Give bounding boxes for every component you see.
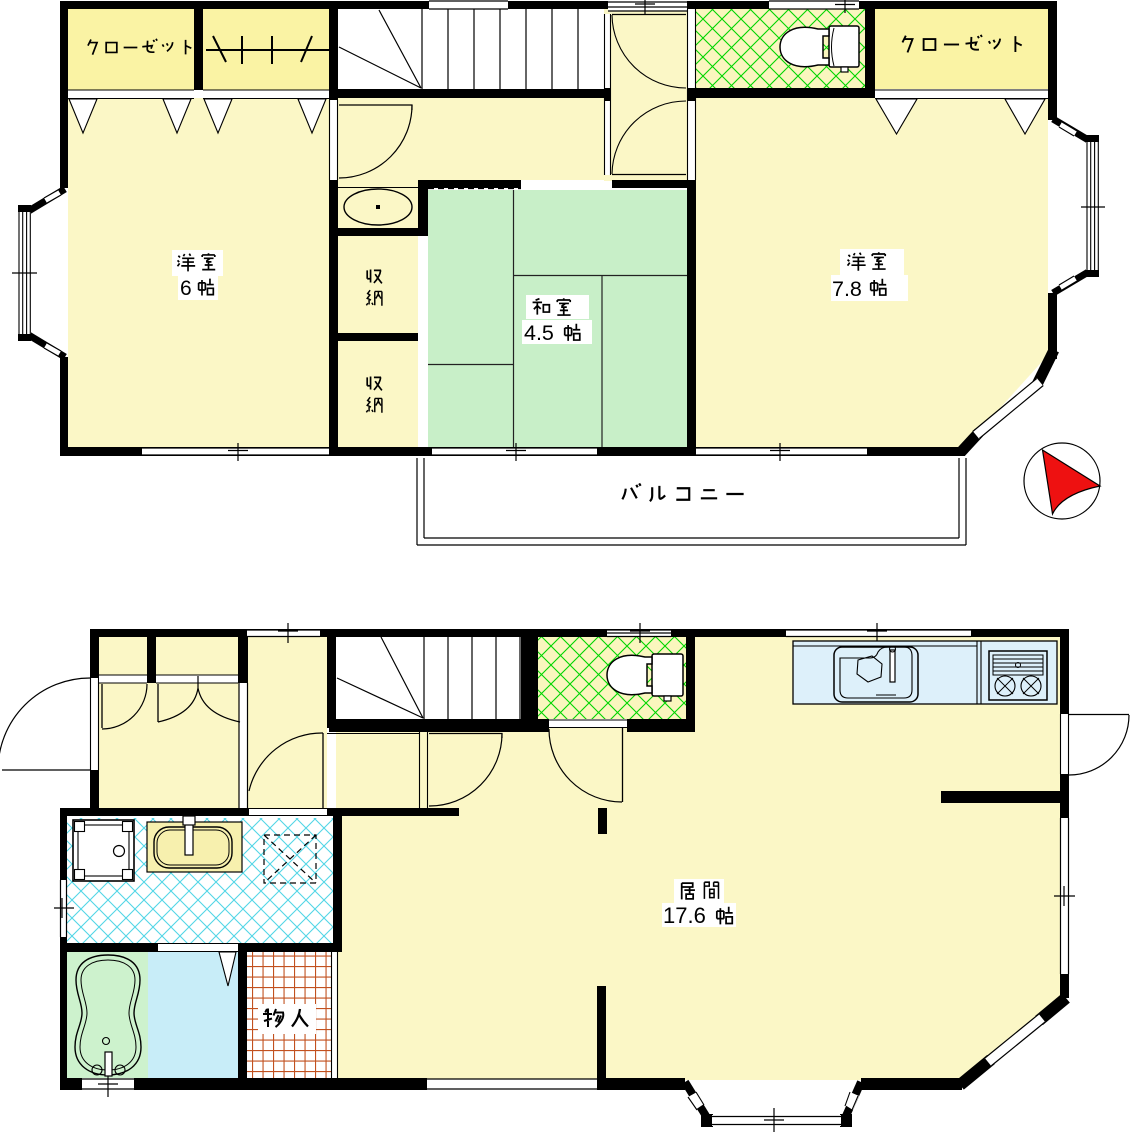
svg-text:6: 6 [180, 277, 192, 300]
svg-text:7.8: 7.8 [832, 277, 862, 301]
svg-text:17.6: 17.6 [663, 903, 706, 928]
svg-text:4.5: 4.5 [524, 321, 554, 345]
